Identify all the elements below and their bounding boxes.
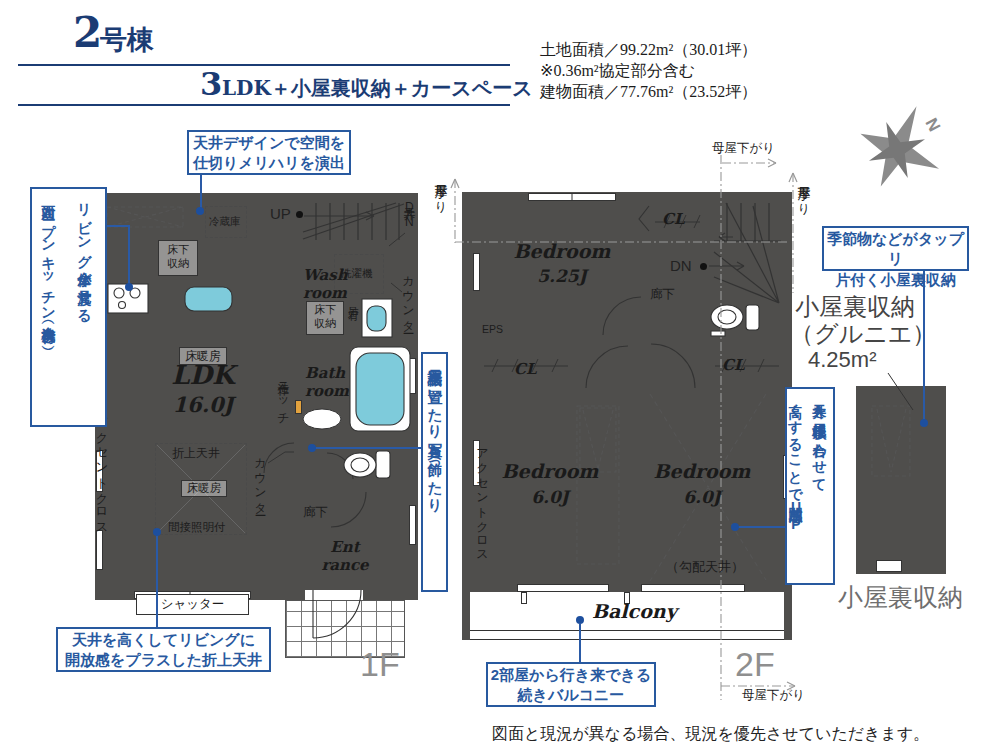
leader-dot	[920, 419, 928, 427]
leader-dot	[731, 523, 739, 531]
bedroom3-size: 6.0J	[652, 487, 752, 507]
ldk-name: LDK	[157, 360, 249, 390]
compass-north-label: N	[921, 115, 944, 135]
underfloor-storage-kitchen: 床下 収納	[158, 240, 198, 276]
sink-icon	[185, 287, 232, 311]
leader-line	[128, 225, 130, 287]
counter-wash-label: カウンター	[401, 268, 415, 338]
bedroom2-size: 6.0J	[500, 487, 600, 507]
washroom-label: Wash room	[303, 266, 348, 302]
leader-line	[737, 526, 785, 528]
plan-number: 3	[200, 68, 222, 100]
floor1-label: 1F	[360, 644, 400, 685]
leader-line	[579, 624, 581, 662]
header-rule-top	[18, 64, 510, 66]
disclaimer: 図面と現況が異なる場合、現況を優先させていただきます。	[492, 724, 929, 743]
closet3-label: CL	[722, 356, 745, 374]
moya-left-label: 母屋下がり	[433, 174, 448, 254]
closet2-label: CL	[514, 360, 537, 378]
bathroom-label: Bath room	[305, 364, 349, 400]
coffered-heating-label: 床暖房	[181, 480, 227, 497]
bedroom1-size: 5.25J	[512, 266, 612, 286]
counter-ldk-label: カウンター	[253, 450, 267, 520]
plan-type: LDK＋小屋裏収納＋カースペース	[222, 76, 533, 100]
closet-hanger-marks	[484, 215, 779, 372]
leader-line	[156, 533, 158, 627]
callout-phone-corner: 電話機を置いたり写真を飾ったり	[421, 352, 448, 592]
leader-line	[200, 175, 202, 211]
indirect-light-label: 間接照明付	[168, 521, 226, 535]
refrigerator-label: 冷蔵庫	[209, 215, 241, 228]
moya-top-label: 母屋下がり	[712, 141, 775, 156]
up-label: UP	[270, 205, 291, 223]
hallway2f-label: 廊下	[650, 287, 675, 302]
hallway1f-label: 廊下	[303, 505, 328, 520]
shutter-label: シャッター	[136, 594, 249, 615]
header-rule-bottom	[18, 104, 510, 106]
entrance-label: Ent rance	[310, 538, 380, 574]
stairs-1f-icon	[303, 203, 404, 240]
bath-oval-icon	[303, 409, 341, 429]
closet1-label: CL	[662, 210, 685, 228]
stairs-2f-icon	[709, 203, 781, 303]
compass-icon: N	[844, 90, 958, 205]
leader-dot	[125, 283, 133, 291]
leader-line	[923, 271, 925, 422]
callout-raised-ceiling: 天井を高くしてリビングに 開放感をプラスした折上天井	[56, 627, 271, 672]
land-area-note: ※0.36m²協定部分含む	[540, 61, 695, 80]
craft-niche-label: 造作ニッチ	[276, 373, 290, 453]
toilet-1f-icon	[344, 451, 390, 478]
floor2-label: 2F	[735, 644, 775, 685]
vanity-icon	[362, 299, 392, 337]
attic-caption: 小屋裏収納	[838, 582, 963, 612]
hanging-door-label: 吊戸有	[346, 299, 359, 339]
callout-attic-storage: 季節物などがタップリ 片付く小屋裏収納	[822, 226, 969, 271]
moya-right-label: 母屋下がり	[796, 176, 811, 256]
bedroom1-name: Bedroom	[512, 240, 612, 262]
balcony-label: Balcony	[592, 600, 677, 622]
leader-dot	[196, 207, 204, 215]
moya-bottom-label: 母屋下がり	[742, 688, 805, 703]
bedroom2-name: Bedroom	[500, 460, 600, 482]
bedroom3-name: Bedroom	[652, 460, 752, 482]
sloped-ceiling-label: （勾配天井）	[666, 559, 744, 575]
callout-balcony-link: 2部屋から行き来できる 続きバルコニー	[486, 662, 656, 707]
building-number: 2	[73, 12, 102, 54]
leader-line	[313, 447, 421, 449]
leader-dot	[153, 528, 161, 536]
leader-line	[106, 225, 130, 227]
attic-title-1: 小屋裏収納	[795, 293, 915, 322]
building-area: 建物面積／77.76m²（23.52坪）	[540, 82, 757, 101]
attic-title-3: 4.25m²	[808, 347, 876, 373]
land-area: 土地面積／99.22m²（30.01坪）	[540, 40, 757, 59]
dn-label: DN	[670, 257, 692, 275]
up-dot	[296, 211, 303, 218]
coffered-label: 折上天井	[172, 446, 220, 460]
floor-plan-page: 2 号棟 3 LDK＋小屋裏収納＋カースペース 土地面積／99.22m²（30.…	[0, 0, 1000, 751]
callout-open-kitchen: リビング全体が見渡せる 対面オープンキッチン（食洗機付き）	[30, 187, 107, 427]
ceiling-dn-label: 天井DN	[402, 198, 416, 258]
callout-sloped-open: 天井を屋根形状に合わせて 高くすることで開放感UP	[785, 387, 835, 585]
dn-dot	[700, 263, 707, 270]
eps-label: EPS	[482, 323, 503, 336]
attic-title-2: （グルニエ）	[790, 320, 936, 349]
underfloor-storage-wash: 床下 収納	[306, 301, 344, 335]
ldk-size: 16.0J	[157, 392, 249, 417]
building-unit: 号棟	[100, 24, 154, 56]
bathtub-icon	[350, 347, 410, 431]
leader-dot	[576, 616, 584, 624]
leader-dot	[308, 444, 316, 452]
toilet-2f-icon	[711, 305, 759, 336]
callout-ceiling-design: 天井デザインで空間を 仕切りメリハリを演出	[187, 130, 351, 175]
accent-cloth2f-label: アクセントクロス	[475, 440, 489, 560]
